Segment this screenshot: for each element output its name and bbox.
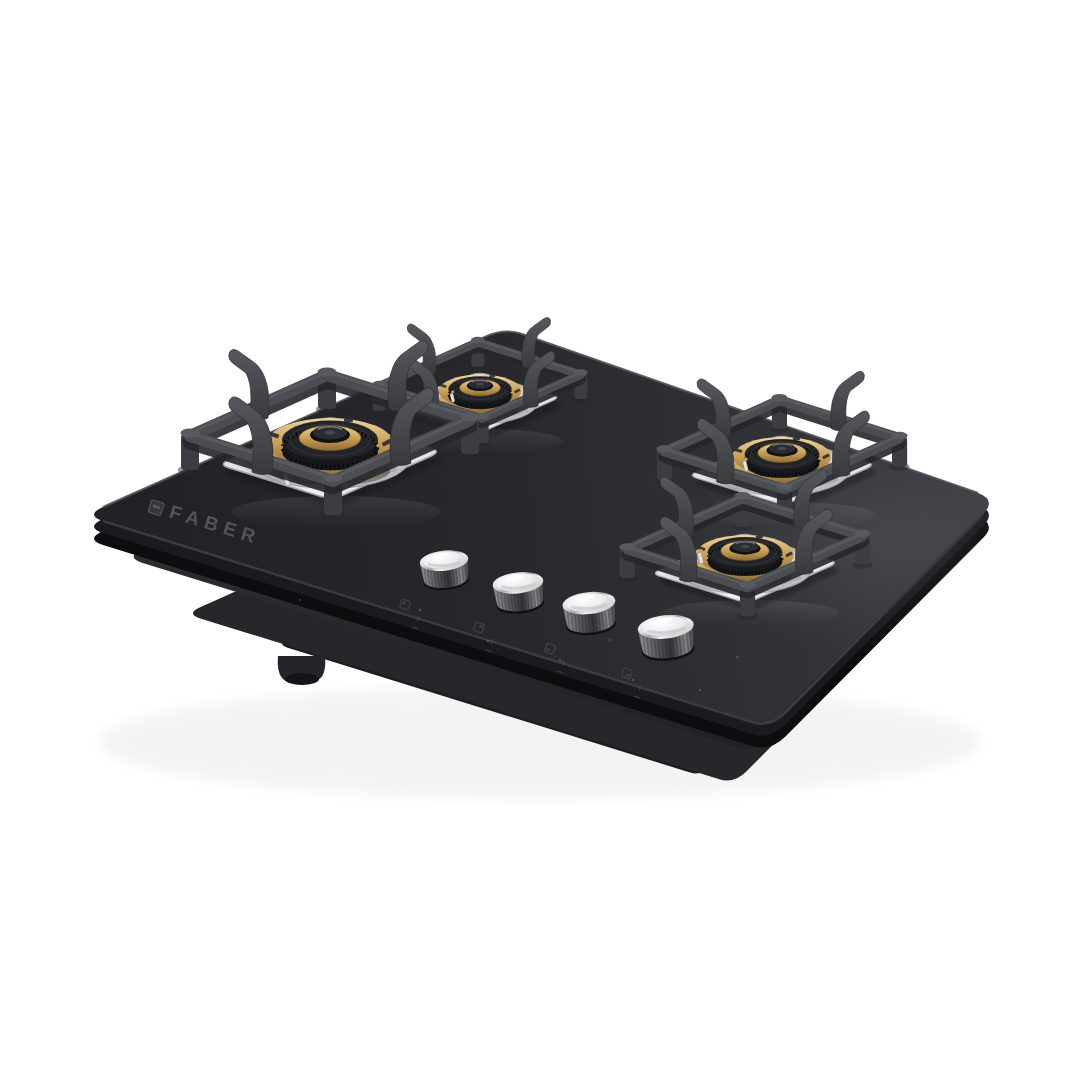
- product-screenshot: FABER: [0, 0, 1080, 1080]
- gas-hob-image: FABER: [0, 0, 1080, 1080]
- rubber-foot-left: [278, 656, 326, 685]
